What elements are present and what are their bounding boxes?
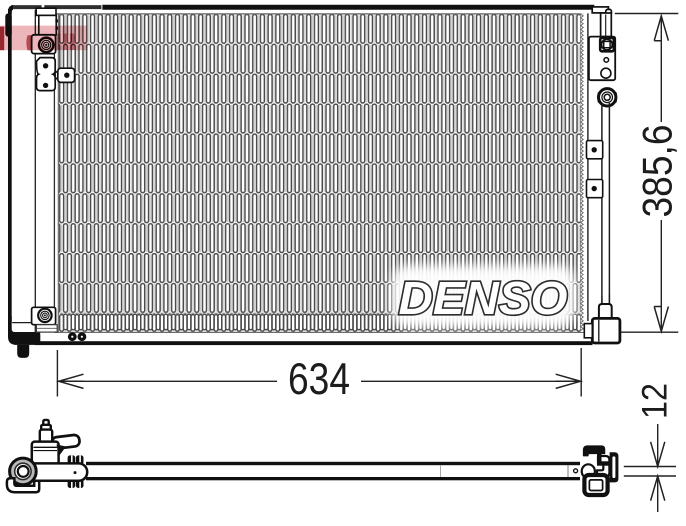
svg-text:385,6: 385,6 (634, 125, 681, 218)
svg-text:12: 12 (636, 383, 675, 419)
svg-text:634: 634 (288, 355, 350, 404)
svg-text:DENSO: DENSO (399, 272, 568, 324)
